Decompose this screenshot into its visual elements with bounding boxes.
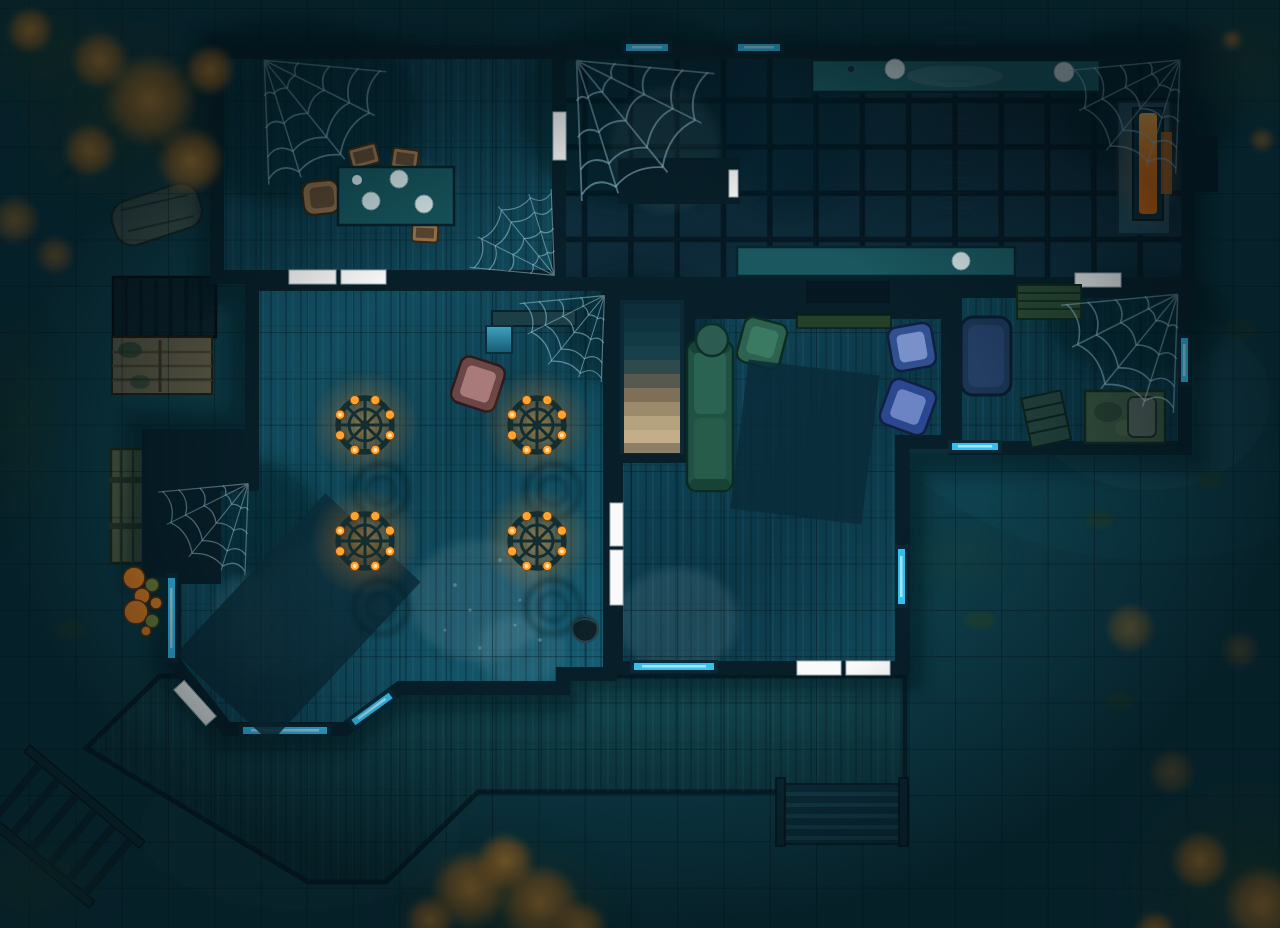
map-scene: Haunted house at night, top-down floor p… — [0, 0, 1280, 928]
battle-map: Haunted house at night, top-down floor p… — [0, 0, 1280, 928]
vignette-overlay — [0, 0, 1280, 928]
